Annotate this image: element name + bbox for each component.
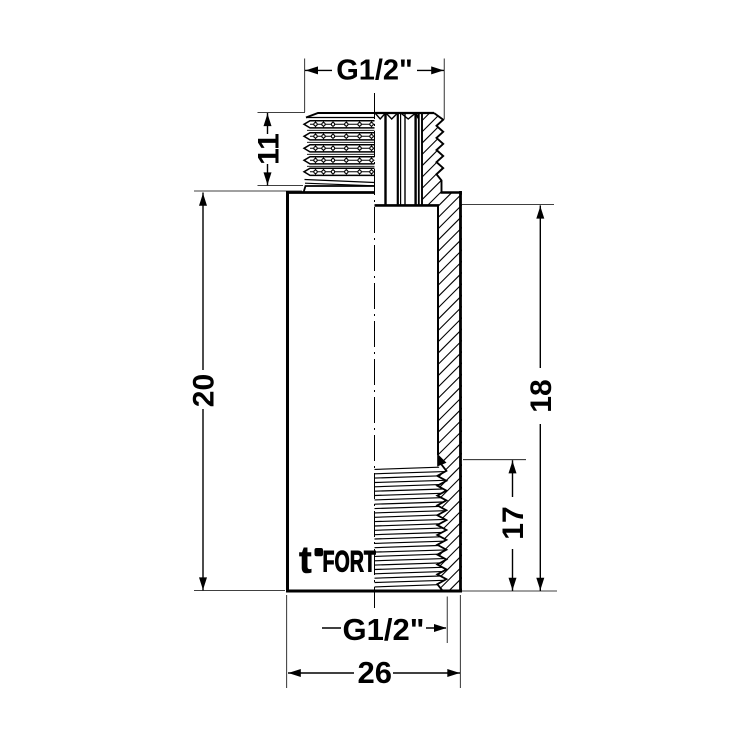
svg-text:G1/2": G1/2" bbox=[343, 612, 425, 647]
svg-text:20: 20 bbox=[188, 374, 221, 407]
svg-text:t: t bbox=[299, 540, 312, 582]
svg-text:17: 17 bbox=[497, 506, 530, 539]
svg-text:11: 11 bbox=[252, 133, 285, 165]
svg-text:FORT: FORT bbox=[323, 546, 377, 579]
svg-text:18: 18 bbox=[525, 379, 558, 412]
svg-text:26: 26 bbox=[357, 655, 391, 690]
svg-text:G1/2": G1/2" bbox=[336, 55, 413, 87]
